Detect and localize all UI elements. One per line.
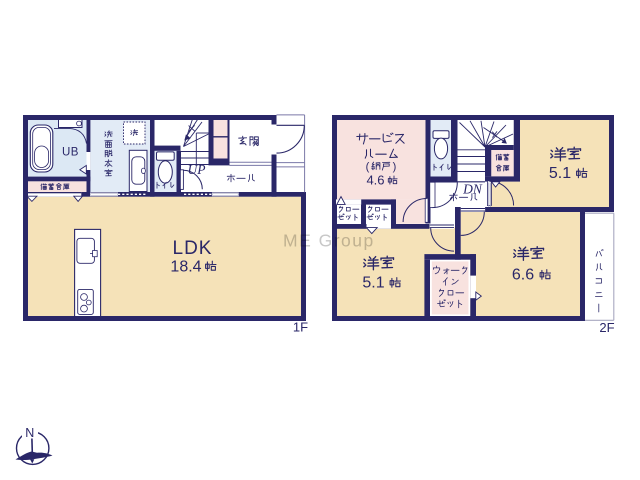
svg-text:2F: 2F: [599, 320, 614, 335]
svg-text:5.1: 5.1: [362, 275, 384, 292]
svg-text:LDK: LDK: [173, 238, 213, 259]
svg-text:1F: 1F: [293, 320, 308, 335]
svg-text:DN: DN: [462, 182, 483, 197]
svg-text:4.6: 4.6: [366, 173, 384, 188]
svg-text:6.6: 6.6: [512, 267, 534, 284]
svg-text:18.4: 18.4: [170, 259, 201, 276]
svg-text:N: N: [25, 426, 34, 440]
svg-text:): ): [393, 161, 397, 173]
svg-text:5.1: 5.1: [549, 165, 571, 182]
svg-text:UB: UB: [62, 146, 79, 158]
svg-text:ME Group: ME Group: [283, 231, 375, 251]
svg-text:UP: UP: [188, 162, 206, 177]
svg-text:(: (: [366, 161, 370, 173]
